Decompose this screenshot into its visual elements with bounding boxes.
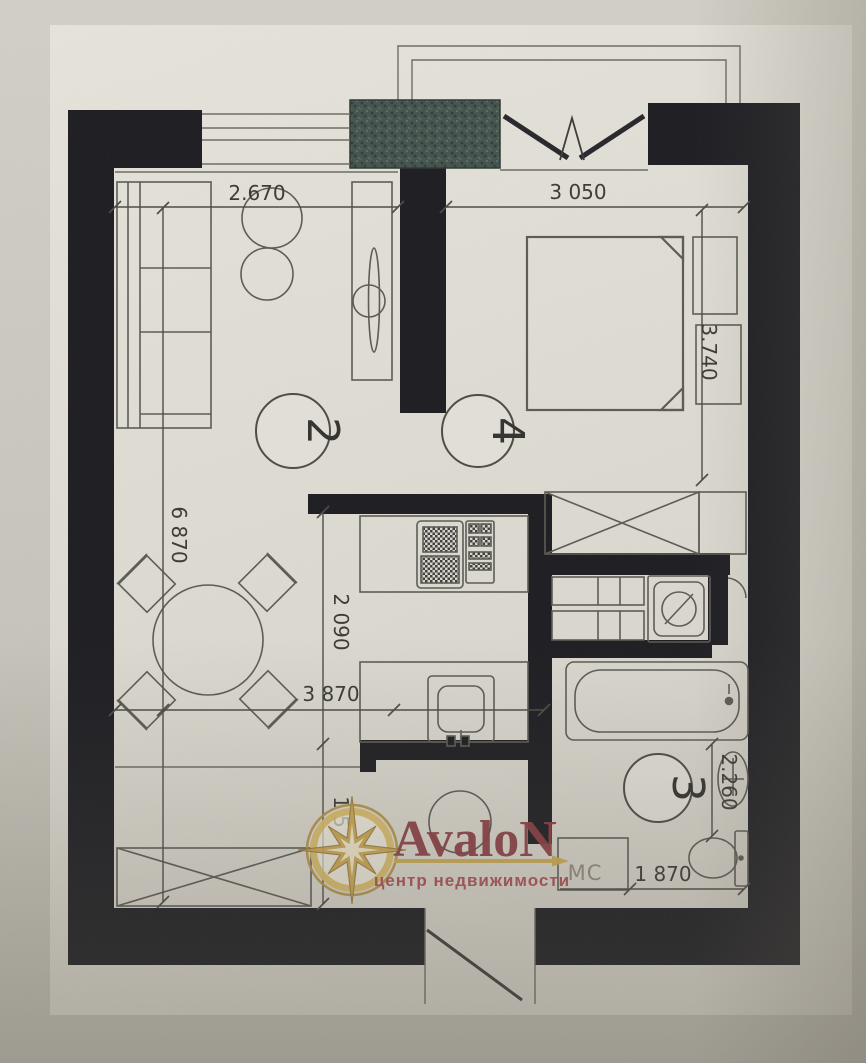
- floorplan-photo: МС 2.670 3 050 3.740 6 870: [0, 0, 866, 1063]
- vignette-right: [0, 0, 866, 1063]
- floorplan-drawing: МС 2.670 3 050 3.740 6 870: [0, 0, 866, 1063]
